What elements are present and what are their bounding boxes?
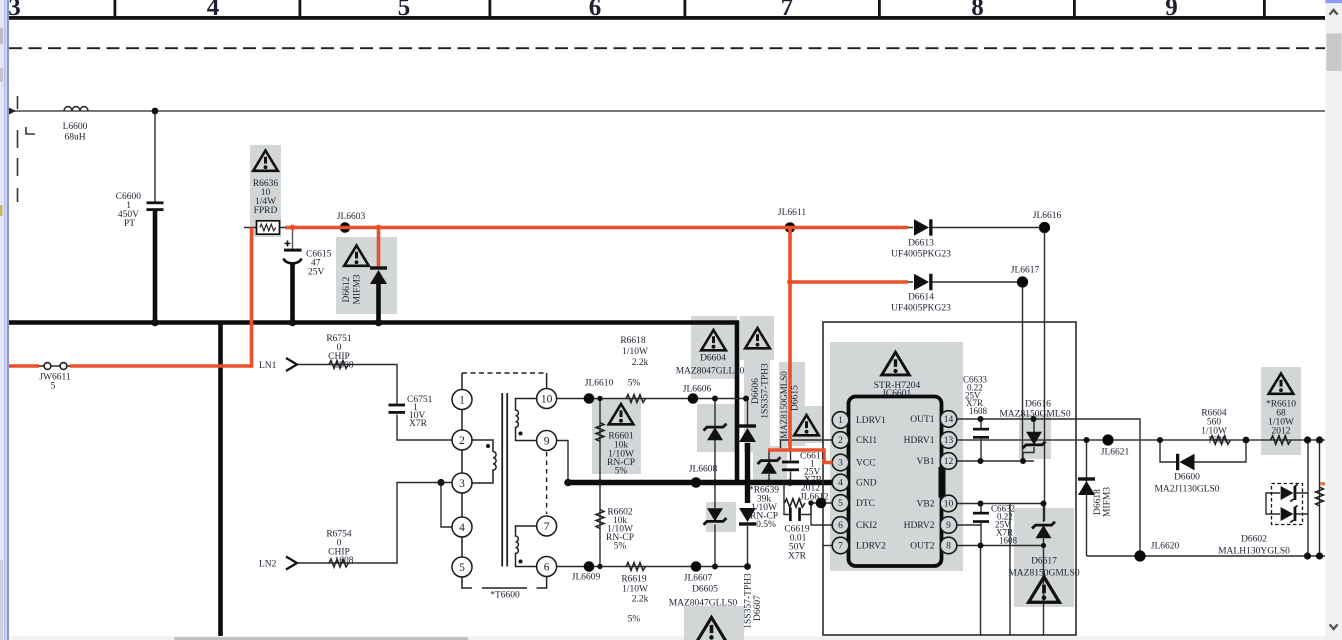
- svg-text:1608: 1608: [335, 556, 354, 566]
- svg-text:X7R: X7R: [788, 552, 807, 562]
- svg-text:X7R: X7R: [409, 419, 428, 429]
- svg-text:R6618: R6618: [620, 336, 646, 346]
- svg-text:IC6601: IC6601: [883, 389, 912, 399]
- svg-text:2.2k: 2.2k: [632, 358, 649, 368]
- svg-text:MA2J1130GLS0: MA2J1130GLS0: [1154, 485, 1219, 495]
- svg-text:1608: 1608: [999, 536, 1018, 546]
- svg-text:4: 4: [459, 522, 465, 534]
- svg-text:6: 6: [838, 521, 843, 531]
- svg-text:MIFM3: MIFM3: [1103, 487, 1113, 517]
- svg-text:JL6603: JL6603: [337, 212, 366, 222]
- svg-text:9: 9: [544, 436, 550, 448]
- svg-text:JL6608: JL6608: [689, 465, 718, 475]
- svg-text:5%: 5%: [628, 615, 641, 625]
- svg-text:JL6620: JL6620: [1151, 542, 1180, 552]
- svg-text:D6613: D6613: [908, 239, 934, 249]
- svg-text:1/10W: 1/10W: [622, 347, 648, 357]
- svg-text:VB1: VB1: [917, 457, 935, 467]
- svg-text:2.2k: 2.2k: [632, 595, 649, 605]
- svg-text:1: 1: [459, 395, 465, 407]
- svg-text:1608: 1608: [1208, 436, 1227, 446]
- svg-text:OUT2: OUT2: [910, 542, 935, 552]
- svg-text:JL6610: JL6610: [585, 379, 614, 389]
- svg-text:5%: 5%: [615, 467, 628, 477]
- svg-text:8: 8: [971, 0, 984, 21]
- svg-text:25V: 25V: [308, 268, 325, 278]
- svg-text:MAZ8150GMLS0: MAZ8150GMLS0: [999, 410, 1071, 420]
- svg-text:LDRV1: LDRV1: [856, 416, 886, 426]
- svg-text:6: 6: [589, 0, 602, 21]
- svg-text:LDRV2: LDRV2: [856, 542, 886, 552]
- svg-text:D6614: D6614: [908, 293, 934, 303]
- svg-text:JL6616: JL6616: [1033, 211, 1062, 221]
- svg-text:5: 5: [459, 562, 465, 574]
- svg-text:6: 6: [544, 562, 550, 574]
- svg-text:10: 10: [541, 394, 553, 406]
- svg-text:MAZ8150GMLS0: MAZ8150GMLS0: [1008, 569, 1080, 579]
- svg-text:JL6621: JL6621: [1101, 448, 1130, 458]
- svg-text:D6616: D6616: [1025, 400, 1051, 410]
- svg-text:2: 2: [459, 435, 465, 447]
- svg-text:GND: GND: [856, 479, 877, 489]
- svg-text:9: 9: [1165, 0, 1178, 21]
- svg-text:2: 2: [838, 436, 843, 446]
- svg-text:UF4005PKG23: UF4005PKG23: [891, 304, 951, 314]
- svg-text:MALH130YGLS0: MALH130YGLS0: [1218, 547, 1290, 557]
- svg-text:4: 4: [207, 0, 220, 21]
- svg-text:5: 5: [838, 499, 843, 509]
- svg-text:14: 14: [944, 415, 954, 425]
- svg-text:8: 8: [946, 542, 951, 552]
- svg-text:D6605: D6605: [692, 585, 718, 595]
- svg-text:JL6612: JL6612: [800, 493, 829, 503]
- svg-text:1: 1: [838, 416, 843, 426]
- svg-text:D6607: D6607: [753, 595, 763, 621]
- svg-text:D6604: D6604: [700, 354, 726, 364]
- svg-text:5%: 5%: [628, 379, 641, 389]
- svg-text:VCC: VCC: [856, 459, 876, 469]
- svg-text:1/10W: 1/10W: [622, 585, 648, 595]
- svg-text:D6612: D6612: [342, 276, 352, 302]
- svg-text:HDRV2: HDRV2: [904, 521, 935, 531]
- svg-text:D6618: D6618: [1093, 489, 1103, 515]
- svg-text:1SS357-TPH3: 1SS357-TPH3: [744, 573, 754, 629]
- svg-text:HDRV1: HDRV1: [904, 436, 935, 446]
- svg-text:JL6609: JL6609: [572, 573, 601, 583]
- svg-text:LN2: LN2: [259, 560, 277, 570]
- svg-text:9: 9: [946, 521, 951, 531]
- svg-text:5: 5: [51, 382, 56, 392]
- svg-text:FPRD: FPRD: [254, 206, 278, 216]
- svg-text:1SS357-TPH3: 1SS357-TPH3: [761, 363, 771, 419]
- svg-text:68uH: 68uH: [64, 133, 85, 143]
- svg-text:C6751: C6751: [407, 395, 433, 405]
- svg-text:12: 12: [944, 457, 954, 467]
- svg-text:7: 7: [544, 521, 550, 533]
- svg-text:4: 4: [838, 479, 843, 489]
- svg-text:*T6600: *T6600: [490, 591, 520, 601]
- svg-text:UF4005PKG23: UF4005PKG23: [891, 250, 951, 260]
- svg-text:5: 5: [398, 0, 411, 21]
- svg-text:10: 10: [944, 500, 954, 510]
- svg-text:DTC: DTC: [856, 499, 875, 509]
- svg-text:D6600: D6600: [1174, 473, 1200, 483]
- svg-text:0.5%: 0.5%: [756, 520, 776, 530]
- svg-text:D6615: D6615: [791, 385, 801, 411]
- svg-text:7: 7: [781, 0, 794, 21]
- svg-text:VB2: VB2: [917, 500, 935, 510]
- svg-text:JL6607: JL6607: [684, 574, 713, 584]
- svg-text:JL6611: JL6611: [778, 208, 806, 218]
- svg-text:CKI2: CKI2: [856, 521, 877, 531]
- svg-text:MAZ8150GMLS0: MAZ8150GMLS0: [779, 371, 789, 439]
- svg-text:3: 3: [459, 478, 465, 490]
- svg-text:MIFM3: MIFM3: [353, 274, 363, 304]
- svg-text:13: 13: [944, 436, 954, 446]
- svg-text:2012: 2012: [1272, 427, 1291, 437]
- svg-text:5%: 5%: [614, 542, 627, 552]
- svg-text:1608: 1608: [335, 361, 354, 371]
- svg-text:MAZ8047GLLS0: MAZ8047GLLS0: [669, 599, 738, 609]
- svg-text:1608: 1608: [969, 406, 988, 416]
- svg-text:PT: PT: [124, 219, 135, 229]
- svg-text:CKI1: CKI1: [856, 436, 877, 446]
- svg-text:L6600: L6600: [63, 122, 88, 132]
- svg-text:7: 7: [838, 542, 843, 552]
- svg-text:OUT1: OUT1: [910, 415, 935, 425]
- svg-text:D6602: D6602: [1241, 535, 1267, 545]
- svg-text:3: 3: [838, 459, 843, 469]
- svg-text:MAZ8047GLLS0: MAZ8047GLLS0: [676, 367, 745, 377]
- svg-text:JL6606: JL6606: [683, 385, 712, 395]
- svg-text:LN1: LN1: [259, 361, 277, 371]
- svg-text:3: 3: [8, 0, 21, 21]
- svg-text:R6619: R6619: [621, 575, 647, 585]
- svg-text:D6606: D6606: [751, 378, 761, 404]
- svg-text:D6617: D6617: [1031, 557, 1057, 567]
- svg-text:JL6617: JL6617: [1011, 266, 1040, 276]
